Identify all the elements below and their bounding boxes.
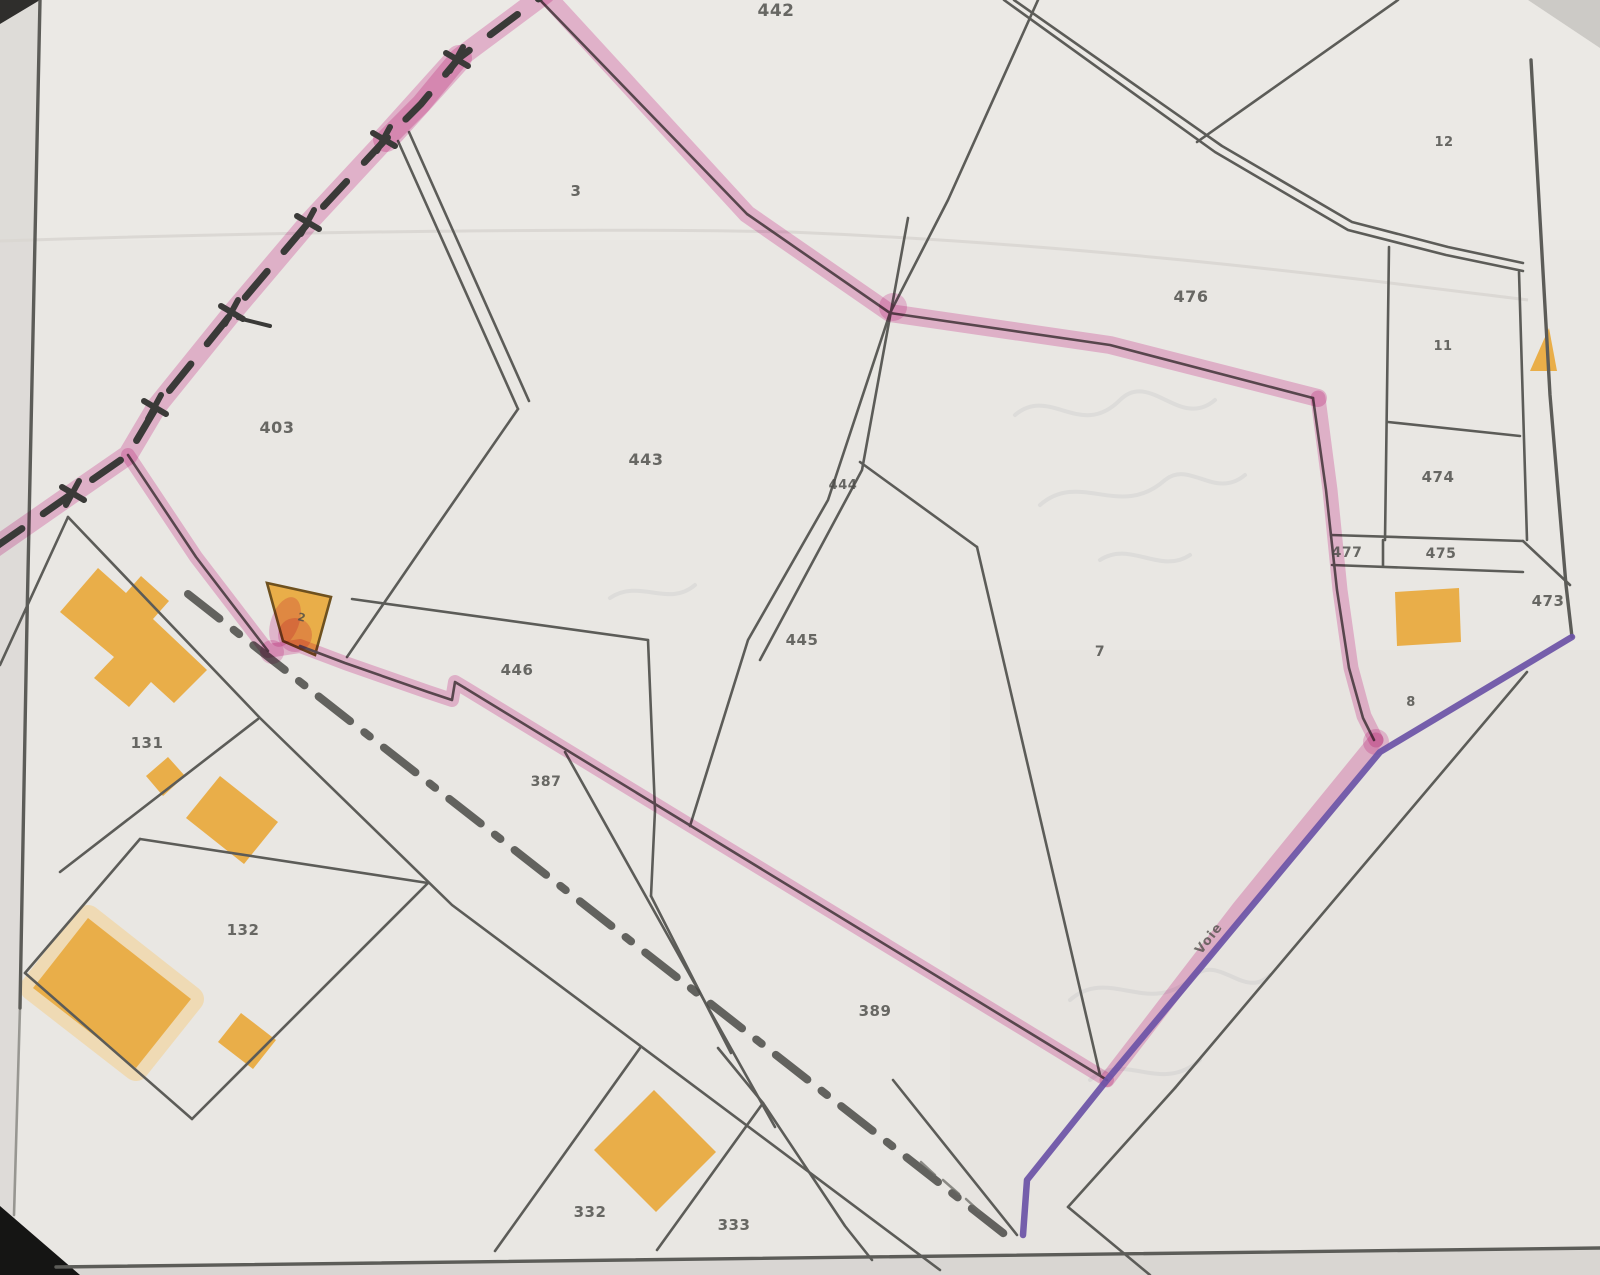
strip-477-475-top [1331,535,1523,541]
parcel-label-132: 132 [227,921,260,939]
parcel-132-northeast [192,883,428,1119]
parcel-label-477: 477 [1332,545,1363,561]
parcel-label-446: 446 [501,661,534,679]
parcel-label-442: 442 [758,1,795,21]
parcel-label-332: 332 [574,1203,607,1221]
left-paper-edge [0,0,40,1275]
ink-bleed-scribble [1040,474,1245,505]
divider-11-474 [1388,422,1520,436]
parcel-label-444: 444 [829,478,858,493]
parcel-label-389: 389 [859,1002,892,1020]
parcel-label-12: 12 [1434,135,1453,150]
wedge-444-west [690,313,890,826]
parcel-label-8: 8 [1406,695,1416,710]
scanned-cadastral-map: 4423124761147447747547387403443444445446… [0,0,1600,1275]
parcel-label-443: 443 [629,450,664,469]
building-473 [1395,588,1461,646]
parcel-label-333: 333 [718,1216,751,1234]
parcel-label-11: 11 [1433,339,1452,354]
building-131b [186,776,278,864]
ink-bleed-scribble [1100,554,1190,562]
paper-tone [950,650,1600,1275]
boundary-446-north [352,599,648,640]
parcel-label-131: 131 [131,734,164,752]
building-triangle-right-edge [1530,328,1557,371]
parcel-label-473: 473 [1532,592,1565,610]
parcel-132-north [140,839,428,883]
parcel-label-474: 474 [1422,468,1455,486]
parcel-445-north [860,462,977,547]
paper-tone [0,0,1600,240]
parcel-label-445: 445 [786,631,819,649]
small-building-132 [218,1013,276,1069]
ink-bleed-scribble [1015,391,1215,415]
parcel-label-3: 3 [571,182,582,200]
block-11-474-east [1519,272,1527,540]
road-centerline [188,594,1012,1240]
strip-477-475-bottom [1332,565,1523,572]
road-axis-dash-dot [188,594,1012,1240]
cadastral-map-canvas: 4423124761147447747547387403443444445446… [0,0,1600,1275]
building-cluster-131 [60,568,207,707]
boundary-446-east [648,640,655,896]
ink-bleed-scribble [610,585,695,598]
block-11-474-west [1385,247,1389,540]
parcel-label-403: 403 [260,418,295,437]
parcel-label-476: 476 [1174,287,1209,306]
parcel-label-7: 7 [1095,644,1105,660]
boundary-403-south [347,409,518,657]
pink-blob [879,293,907,321]
parcel-label-387: 387 [531,774,562,790]
parcel-label-475: 475 [1426,546,1457,562]
